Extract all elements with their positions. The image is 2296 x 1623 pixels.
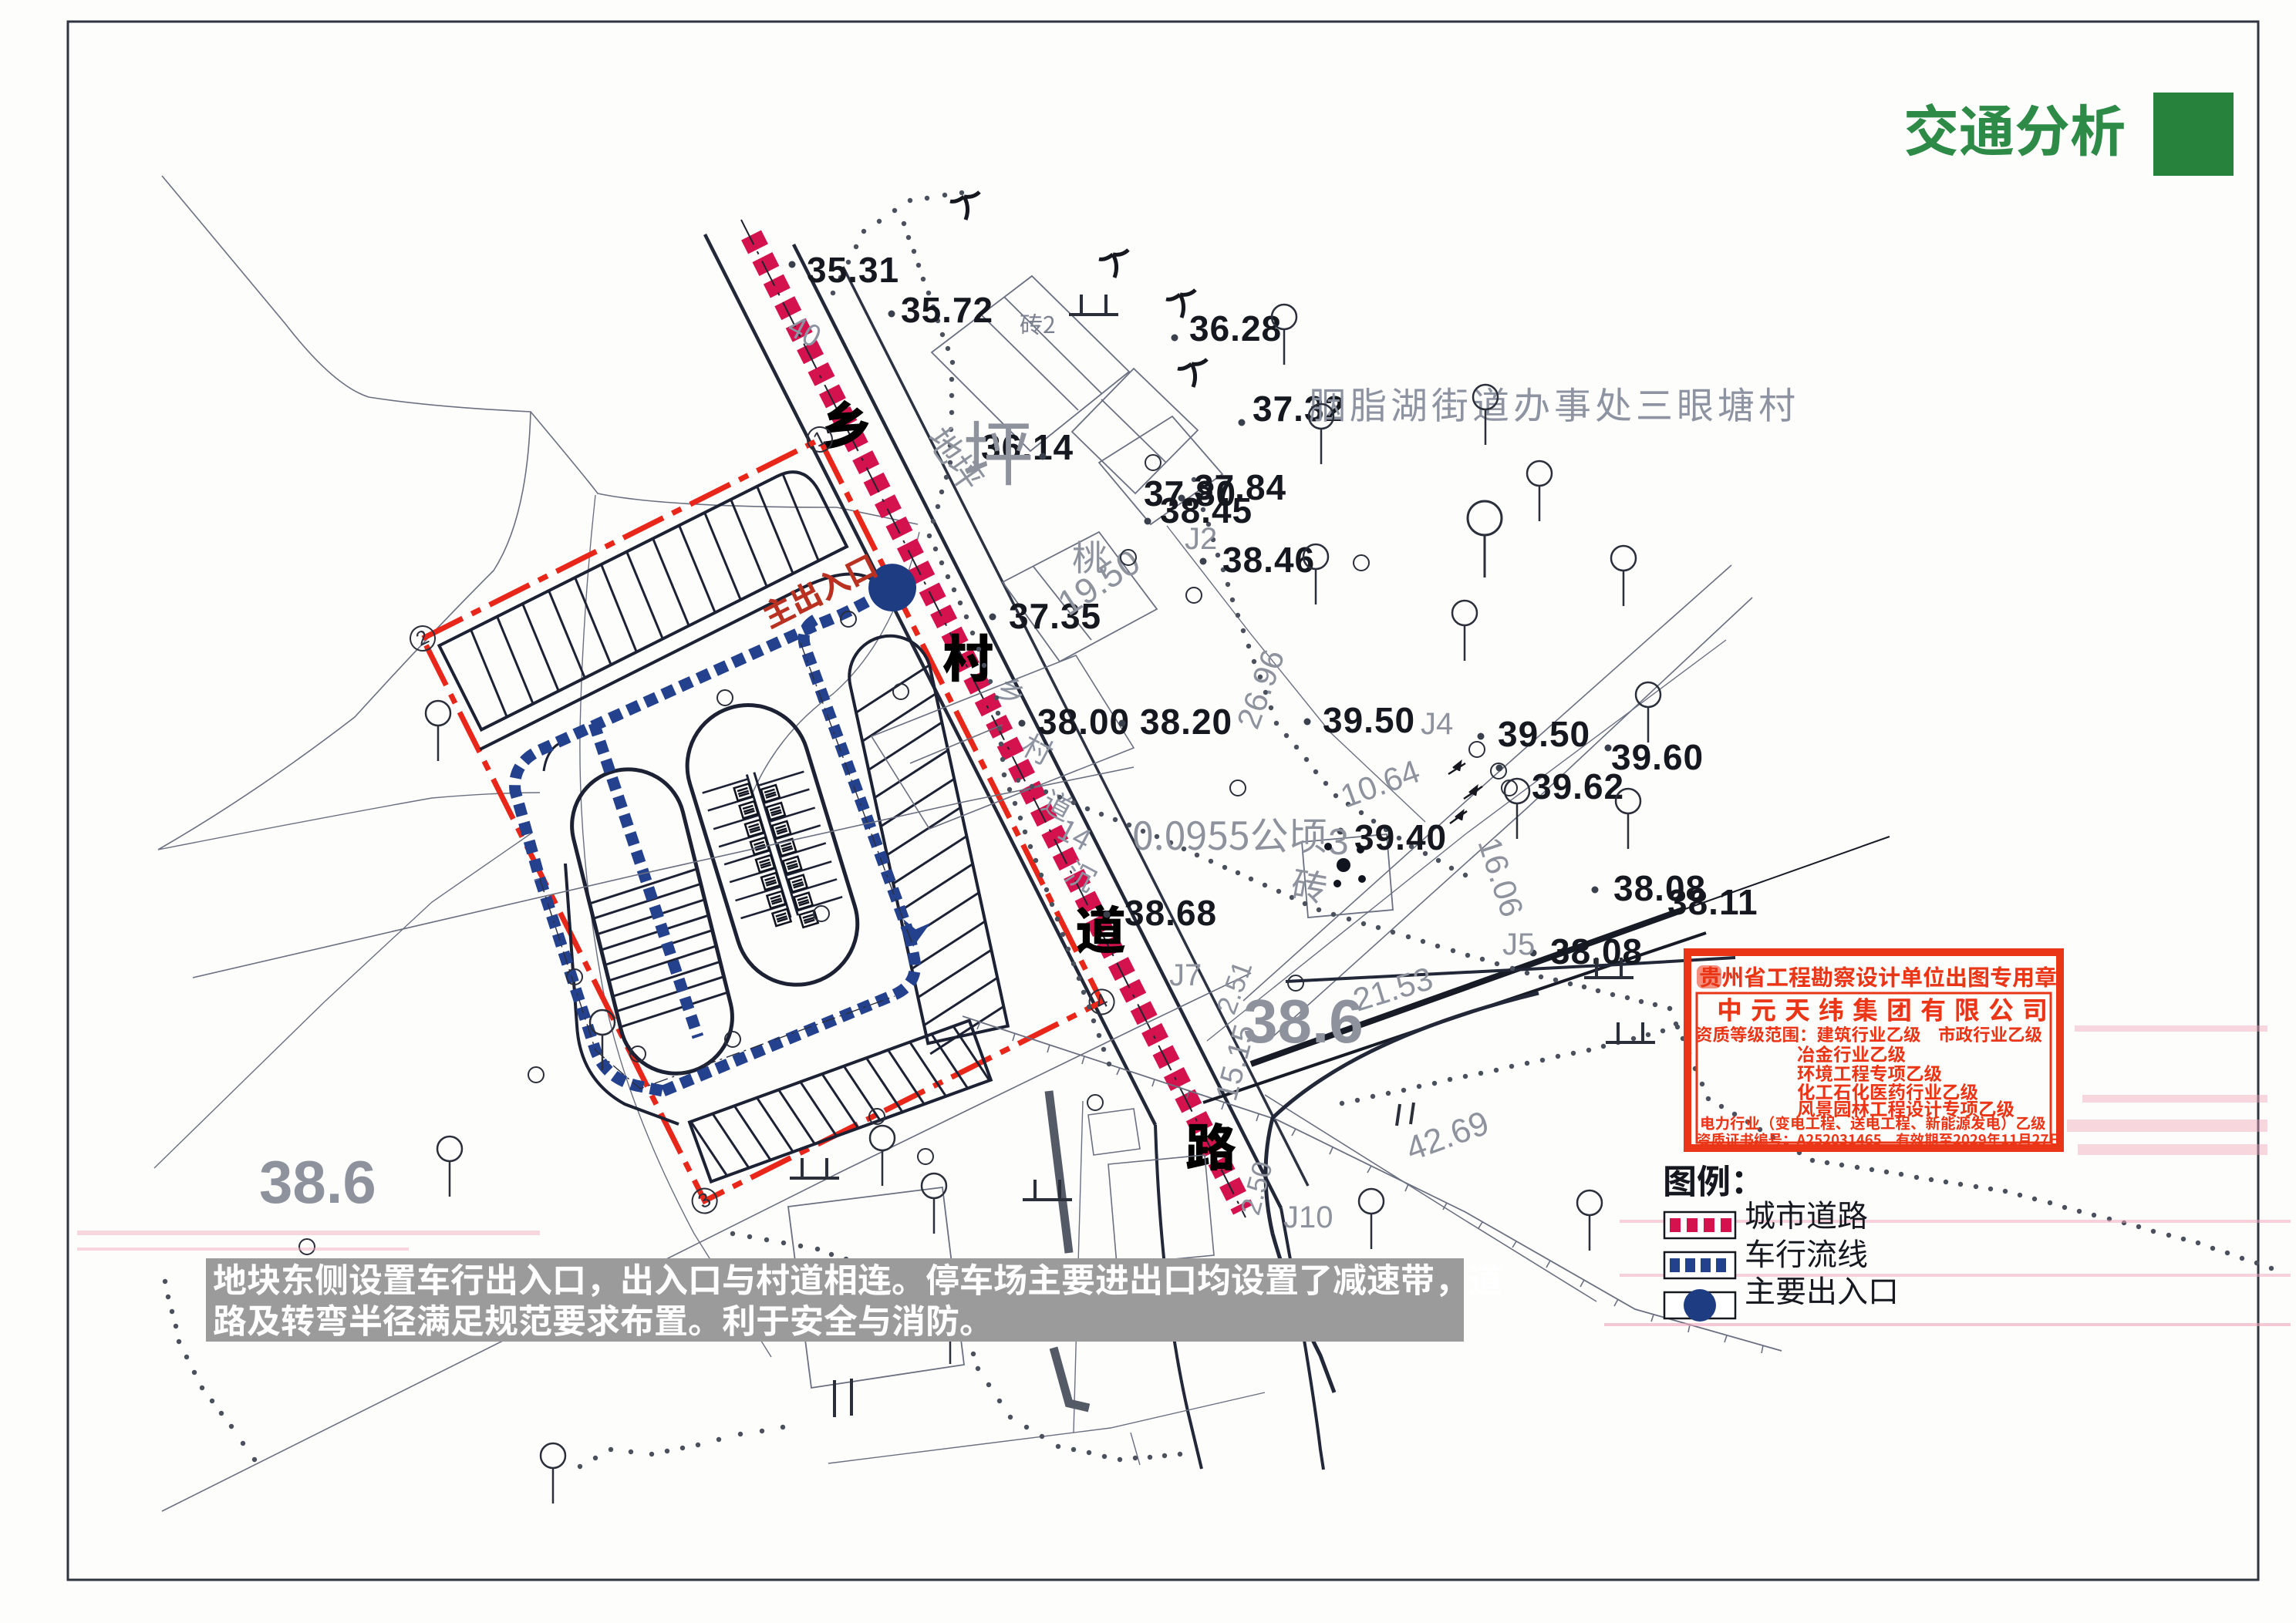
svg-text:3: 3 — [1328, 822, 1349, 863]
svg-text:J7: J7 — [1169, 958, 1202, 992]
svg-text:38.46: 38.46 — [1222, 540, 1315, 580]
svg-text:35.31: 35.31 — [807, 250, 899, 290]
svg-text:38.00: 38.00 — [1037, 702, 1130, 742]
svg-text:J4: J4 — [1421, 707, 1453, 741]
svg-text:J10: J10 — [1283, 1200, 1333, 1234]
svg-text:38.20: 38.20 — [1140, 702, 1232, 742]
svg-text:J2: J2 — [1185, 522, 1217, 556]
svg-text:39.60: 39.60 — [1611, 737, 1704, 777]
svg-text:39.40: 39.40 — [1354, 817, 1447, 857]
svg-text:39.50: 39.50 — [1323, 700, 1415, 740]
svg-text:38.11: 38.11 — [1667, 882, 1758, 922]
svg-text:38.6: 38.6 — [1243, 987, 1364, 1056]
svg-text:38.68: 38.68 — [1124, 893, 1217, 933]
svg-text:36.28: 36.28 — [1189, 308, 1282, 349]
svg-text:J5: J5 — [1502, 928, 1535, 961]
svg-text:39.50: 39.50 — [1498, 714, 1590, 754]
svg-text:38.6: 38.6 — [259, 1148, 376, 1216]
svg-text:35.72: 35.72 — [901, 290, 993, 330]
